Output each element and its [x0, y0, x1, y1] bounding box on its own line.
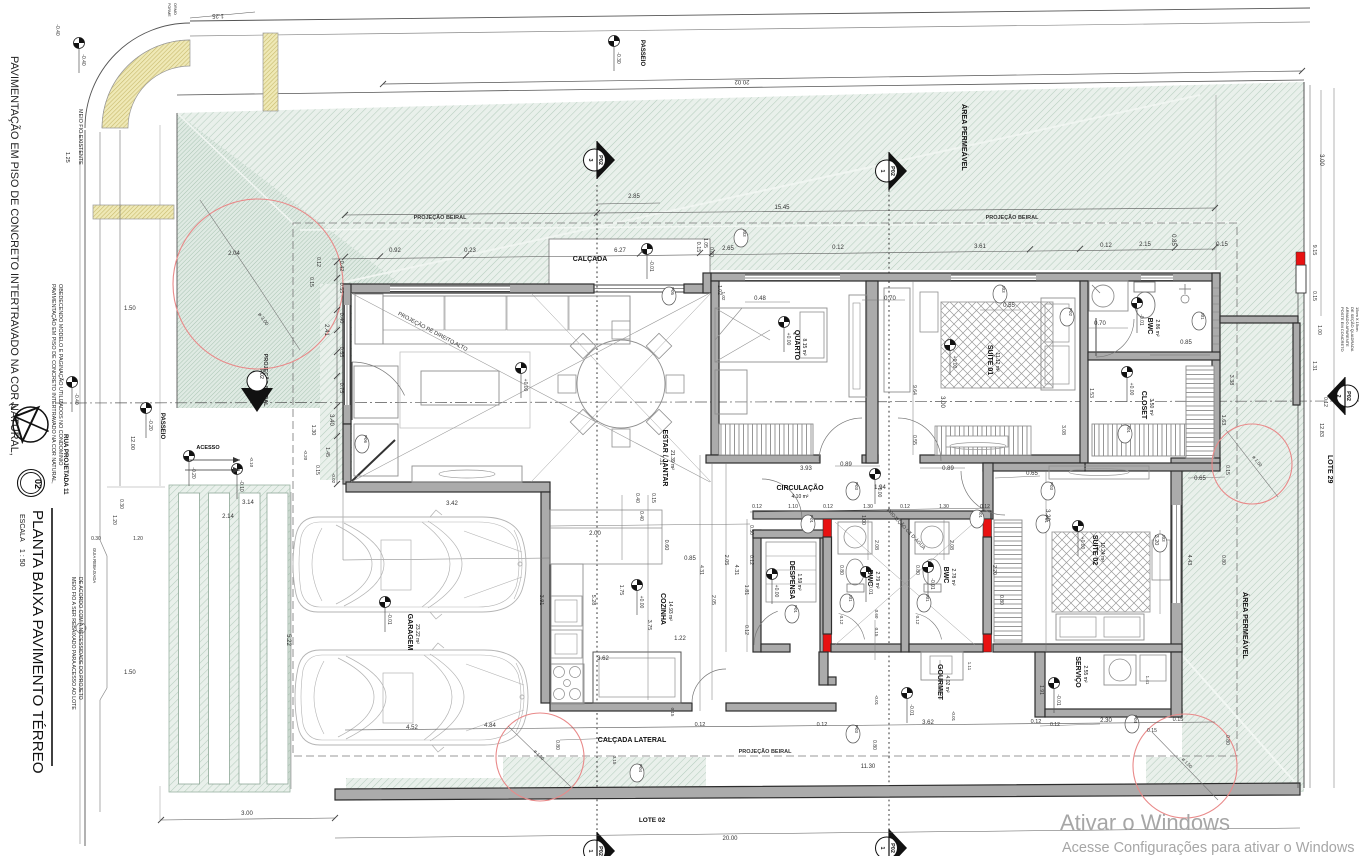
svg-text:23.22 m²: 23.22 m²: [414, 624, 420, 644]
svg-text:0.55: 0.55: [1003, 303, 1015, 309]
svg-text:ÁREA PERMEÁVEL: ÁREA PERMEÁVEL: [1241, 592, 1250, 659]
svg-text:1.30: 1.30: [939, 504, 949, 510]
svg-text:CLOSET: CLOSET: [1140, 391, 1147, 420]
svg-text:COZINHA: COZINHA: [659, 593, 666, 625]
svg-text:J01: J01: [1200, 312, 1205, 320]
svg-text:3.93: 3.93: [800, 466, 812, 472]
svg-text:ACESSO: ACESSO: [196, 445, 220, 451]
svg-text:3.75: 3.75: [646, 620, 652, 631]
svg-text:0.60: 0.60: [663, 540, 669, 551]
svg-text:+0.00: +0.00: [522, 379, 528, 392]
svg-text:0.80: 0.80: [998, 595, 1004, 605]
svg-text:4.31: 4.31: [733, 565, 739, 576]
svg-text:1.11: 1.11: [967, 662, 972, 671]
svg-text:+0.00: +0.00: [1128, 383, 1134, 396]
svg-text:-0.40: -0.40: [73, 393, 79, 405]
svg-text:2.20: 2.20: [991, 565, 997, 575]
svg-text:PROJEÇÃO BEIRAL: PROJEÇÃO BEIRAL: [414, 214, 468, 221]
svg-text:-0.01: -0.01: [951, 711, 956, 722]
svg-text:1.05: 1.05: [702, 238, 708, 248]
svg-text:GUIA REBAIXADA: GUIA REBAIXADA: [92, 548, 97, 583]
svg-text:ORMO: ORMO: [173, 3, 177, 15]
svg-text:0.80: 0.80: [871, 740, 877, 750]
svg-text:5.28: 5.28: [590, 595, 596, 606]
svg-text:1.94: 1.94: [874, 485, 886, 491]
svg-text:0.12: 0.12: [823, 504, 833, 510]
svg-text:0.15: 0.15: [1224, 465, 1230, 475]
svg-text:P02: P02: [1068, 308, 1073, 317]
svg-text:3.20: 3.20: [1153, 535, 1159, 546]
svg-text:3.40: 3.40: [328, 414, 334, 426]
svg-text:-0.40: -0.40: [80, 54, 86, 66]
svg-text:1.53: 1.53: [1088, 388, 1094, 398]
svg-text:15.45: 15.45: [774, 205, 790, 211]
svg-text:4.43: 4.43: [1186, 555, 1192, 566]
svg-text:CALÇADA: CALÇADA: [573, 256, 608, 263]
svg-text:4.84: 4.84: [484, 723, 496, 729]
svg-text:0.65: 0.65: [1026, 471, 1038, 477]
svg-text:A01: A01: [1126, 425, 1131, 434]
svg-text:0.80: 0.80: [914, 565, 920, 575]
svg-text:P03: P03: [854, 482, 859, 491]
svg-text:-0.02: -0.02: [331, 473, 336, 484]
svg-text:A01: A01: [978, 510, 983, 519]
svg-text:0.12: 0.12: [695, 722, 706, 728]
svg-text:0.15: 0.15: [1311, 291, 1317, 301]
svg-text:0.42: 0.42: [338, 261, 344, 272]
svg-text:0.55: 0.55: [338, 347, 344, 358]
svg-text:-0.30: -0.30: [615, 52, 621, 64]
svg-text:0.65: 0.65: [1194, 476, 1206, 482]
svg-text:0.55: 0.55: [338, 283, 344, 294]
svg-text:P02: P02: [597, 846, 603, 856]
svg-text:4.52: 4.52: [406, 725, 418, 731]
svg-text:1.50: 1.50: [124, 306, 136, 312]
svg-text:1.91: 1.91: [1038, 685, 1044, 695]
svg-text:J03: J03: [742, 229, 747, 237]
svg-text:3.62: 3.62: [922, 720, 934, 726]
svg-text:11.30: 11.30: [861, 764, 876, 770]
svg-text:0.70: 0.70: [884, 296, 896, 302]
svg-text:P04: P04: [638, 764, 643, 773]
svg-text:3.00: 3.00: [241, 811, 253, 817]
svg-text:0.89: 0.89: [942, 466, 954, 472]
svg-text:02: 02: [33, 479, 43, 489]
svg-text:ARMADO APARENTE: ARMADO APARENTE: [1345, 307, 1350, 347]
svg-text:0.80: 0.80: [554, 740, 560, 750]
svg-text:0.75: 0.75: [338, 383, 344, 394]
svg-text:-0.10: -0.10: [238, 480, 244, 492]
svg-text:MEIO FIO A SER REBAIXADO PARA: MEIO FIO A SER REBAIXADO PARA ACESSO AO …: [70, 577, 76, 710]
svg-text:21.39 m²: 21.39 m²: [669, 450, 675, 470]
svg-text:3.08: 3.08: [1060, 425, 1066, 435]
svg-text:1: 1: [879, 846, 885, 849]
svg-text:0.80: 0.80: [1224, 735, 1230, 745]
svg-text:J03: J03: [1161, 534, 1166, 542]
svg-text:12.83: 12.83: [1318, 423, 1324, 437]
svg-text:3.91: 3.91: [538, 595, 544, 606]
svg-text:0.15: 0.15: [1173, 717, 1184, 723]
svg-text:QUARTO: QUARTO: [793, 330, 800, 361]
svg-text:1.45: 1.45: [324, 447, 330, 457]
svg-text:P02: P02: [597, 155, 603, 165]
svg-text:1.31: 1.31: [1311, 361, 1317, 371]
svg-text:20.02: 20.02: [734, 78, 750, 84]
svg-text:0.12: 0.12: [817, 722, 828, 728]
svg-text:3.38: 3.38: [1228, 375, 1234, 386]
svg-text:DE SEÇÃO QUADRADA: DE SEÇÃO QUADRADA: [1350, 307, 1355, 352]
svg-text:PLANTA BAIXA PAVIMENTO TÉRREO: PLANTA BAIXA PAVIMENTO TÉRREO: [29, 510, 46, 774]
svg-text:3.42: 3.42: [446, 501, 458, 507]
svg-text:0.12: 0.12: [1100, 243, 1112, 249]
svg-text:1.20: 1.20: [111, 515, 117, 525]
svg-text:PAVIMENTAÇÃO EM PISO DE CONCRE: PAVIMENTAÇÃO EM PISO DE CONCRETO INTERTR…: [50, 284, 57, 484]
svg-text:1.20: 1.20: [133, 536, 143, 542]
svg-text:SERVIÇO: SERVIÇO: [1074, 656, 1081, 688]
svg-text:15cm X 15cm: 15cm X 15cm: [1355, 307, 1359, 332]
svg-text:0.23: 0.23: [464, 248, 476, 254]
svg-text:1.51: 1.51: [939, 688, 944, 697]
svg-text:-0.01: -0.01: [1138, 314, 1144, 326]
svg-text:0.12: 0.12: [839, 616, 844, 625]
svg-text:PAVIMENTAÇÃO EM PISO DE CONCRE: PAVIMENTAÇÃO EM PISO DE CONCRETO INTERTR…: [8, 56, 21, 456]
svg-text:+0.00: +0.00: [638, 596, 644, 609]
svg-text:20.00: 20.00: [722, 836, 738, 842]
svg-text:DE ACORDO COM A NECESSIDADE DO: DE ACORDO COM A NECESSIDADE DO PROJETO: [77, 577, 83, 700]
svg-text:-0.01: -0.01: [929, 578, 935, 590]
svg-text:BWC: BWC: [1146, 318, 1153, 335]
svg-text:2.86 m²: 2.86 m²: [1154, 320, 1160, 337]
svg-text:LOTE 02: LOTE 02: [639, 817, 666, 824]
svg-text:3: 3: [587, 158, 593, 161]
svg-text:0.15: 0.15: [612, 756, 617, 765]
svg-text:-0.01: -0.01: [908, 704, 914, 716]
svg-text:0.80: 0.80: [708, 247, 714, 257]
svg-text:P02: P02: [258, 369, 264, 379]
svg-text:8.15 m²: 8.15 m²: [801, 339, 807, 356]
svg-text:P03: P03: [1049, 482, 1054, 491]
svg-text:Acesse Configurações para ativ: Acesse Configurações para ativar o Windo…: [1062, 840, 1355, 856]
svg-text:0.85: 0.85: [1180, 340, 1192, 346]
svg-text:2.08: 2.08: [873, 540, 879, 550]
svg-text:2.30: 2.30: [1100, 718, 1112, 724]
svg-text:3.20: 3.20: [1044, 509, 1050, 521]
svg-text:3.50 m²: 3.50 m²: [1148, 399, 1154, 416]
svg-text:2.04: 2.04: [228, 251, 240, 257]
svg-text:J03: J03: [1001, 285, 1006, 293]
svg-text:LOTE 29: LOTE 29: [1326, 455, 1333, 484]
svg-text:0.12: 0.12: [743, 625, 749, 635]
svg-text:0.70: 0.70: [1094, 321, 1106, 327]
svg-text:P04: P04: [1133, 715, 1138, 724]
svg-text:0.89: 0.89: [840, 462, 852, 468]
svg-text:-0.10: -0.10: [249, 457, 254, 468]
svg-text:0.12: 0.12: [915, 616, 920, 625]
svg-text:P01: P01: [793, 605, 798, 614]
svg-text:0.60: 0.60: [874, 610, 879, 619]
svg-text:PASSEIO: PASSEIO: [159, 413, 165, 440]
svg-text:14.93 m²: 14.93 m²: [667, 601, 673, 621]
svg-text:P02: P02: [889, 843, 895, 853]
svg-text:-0.01: -0.01: [874, 695, 879, 706]
svg-text:0.15: 0.15: [314, 465, 320, 475]
svg-text:1.22: 1.22: [674, 636, 686, 642]
svg-text:2.41: 2.41: [323, 324, 329, 336]
svg-text:0.85: 0.85: [684, 556, 696, 562]
svg-text:2.14: 2.14: [222, 514, 234, 520]
svg-text:0.15: 0.15: [670, 708, 675, 717]
svg-text:SUÍTE 02: SUÍTE 02: [1091, 535, 1100, 565]
svg-text:+0.00: +0.00: [773, 585, 779, 598]
svg-text:0.12: 0.12: [315, 257, 321, 267]
svg-text:P06: P06: [363, 435, 368, 444]
svg-text:0.12: 0.12: [832, 245, 844, 251]
svg-text:J01: J01: [925, 594, 930, 602]
svg-text:0.30: 0.30: [91, 536, 101, 542]
svg-text:2.08: 2.08: [948, 540, 954, 550]
svg-text:CALÇADA LATERAL: CALÇADA LATERAL: [598, 737, 667, 744]
svg-text:0.12: 0.12: [1322, 397, 1328, 407]
svg-text:2.15: 2.15: [1139, 242, 1151, 248]
svg-text:DESPENSA: DESPENSA: [788, 561, 795, 600]
svg-text:SUÍTE 01: SUÍTE 01: [986, 345, 995, 375]
svg-text:3.62: 3.62: [597, 656, 609, 662]
svg-text:2.65: 2.65: [722, 246, 734, 252]
svg-text:0.12: 0.12: [1031, 719, 1042, 725]
svg-text:0.12: 0.12: [980, 504, 990, 510]
svg-text:PASSEIO: PASSEIO: [639, 40, 645, 67]
svg-text:ÁREA PERMEÁVEL: ÁREA PERMEÁVEL: [960, 104, 969, 171]
svg-text:5.22: 5.22: [285, 634, 291, 646]
svg-text:0.15: 0.15: [1147, 728, 1157, 734]
svg-text:ESCALA: ESCALA: [18, 514, 25, 542]
svg-text:1.10: 1.10: [788, 504, 798, 510]
svg-text:Ativar o Windows: Ativar o Windows: [1060, 810, 1230, 835]
svg-text:4.31: 4.31: [698, 565, 704, 575]
svg-text:1 : 50: 1 : 50: [18, 549, 25, 567]
svg-text:0.12: 0.12: [752, 504, 762, 510]
svg-text:0.85: 0.85: [1170, 234, 1176, 246]
svg-text:0.40: 0.40: [338, 313, 344, 324]
svg-text:2.05: 2.05: [710, 595, 716, 605]
svg-text:FORME: FORME: [167, 3, 171, 17]
svg-text:0.55: 0.55: [911, 435, 917, 445]
svg-text:7.31: 7.31: [658, 455, 664, 466]
svg-text:-0.20: -0.20: [147, 419, 153, 431]
svg-text:0.30: 0.30: [118, 499, 124, 509]
svg-text:1: 1: [879, 169, 885, 172]
svg-text:P05: P05: [670, 287, 675, 296]
svg-text:1.81: 1.81: [743, 585, 749, 596]
svg-text:3.00: 3.00: [939, 396, 945, 408]
svg-text:1.41: 1.41: [1145, 676, 1150, 685]
svg-text:POSTE EM CONCRETO: POSTE EM CONCRETO: [1340, 307, 1345, 352]
svg-text:3.00: 3.00: [1318, 154, 1324, 166]
svg-text:P01: P01: [809, 515, 814, 524]
svg-text:1.59 m²: 1.59 m²: [796, 574, 802, 591]
svg-text:0.15: 0.15: [1216, 242, 1228, 248]
svg-text:0.30: 0.30: [748, 525, 754, 535]
svg-text:0.40: 0.40: [634, 493, 640, 503]
svg-text:-0.40: -0.40: [54, 24, 60, 36]
svg-text:1.50: 1.50: [124, 670, 136, 676]
svg-text:0.12: 0.12: [1050, 722, 1060, 728]
svg-text:BWC: BWC: [866, 570, 873, 587]
svg-text:+0.00: +0.00: [785, 333, 791, 346]
svg-text:-0.01: -0.01: [1055, 694, 1061, 706]
svg-text:2: 2: [1335, 394, 1341, 397]
svg-text:0.80: 0.80: [1220, 555, 1226, 565]
svg-text:+0.00: +0.00: [951, 356, 957, 369]
svg-text:1.75: 1.75: [618, 585, 624, 596]
svg-text:OBEDECENDO MODELO E PAGINAÇÃO: OBEDECENDO MODELO E PAGINAÇÃO UTILIZADOS…: [57, 284, 64, 465]
svg-text:10.24 m²: 10.24 m²: [1099, 542, 1105, 562]
svg-text:1.00: 1.00: [1316, 325, 1322, 335]
svg-text:2.05: 2.05: [723, 555, 729, 566]
svg-text:9.64: 9.64: [911, 385, 917, 395]
svg-text:2.85: 2.85: [628, 194, 640, 200]
svg-text:-0.01: -0.01: [386, 613, 392, 625]
svg-text:1.25: 1.25: [64, 152, 70, 163]
svg-text:1.02: 1.02: [721, 292, 726, 301]
svg-text:-0.20: -0.20: [303, 450, 308, 461]
svg-text:0.12: 0.12: [748, 555, 754, 565]
svg-text:GARAGEM: GARAGEM: [406, 614, 413, 651]
svg-text:4.10 m²: 4.10 m²: [792, 494, 809, 500]
svg-text:2.79 m²: 2.79 m²: [874, 572, 880, 589]
svg-text:P02: P02: [889, 166, 895, 176]
svg-text:CIRCULAÇÃO: CIRCULAÇÃO: [776, 483, 824, 492]
svg-text:1.00: 1.00: [860, 515, 866, 525]
svg-text:1.30: 1.30: [863, 504, 873, 510]
svg-text:P02: P02: [1345, 391, 1351, 401]
svg-text:0.15: 0.15: [695, 242, 701, 253]
svg-text:BWC: BWC: [942, 567, 949, 584]
svg-text:3.14: 3.14: [242, 500, 254, 506]
svg-text:-0.01: -0.01: [648, 260, 654, 272]
svg-text:1.63: 1.63: [1220, 415, 1226, 426]
svg-text:2.55 m²: 2.55 m²: [1082, 666, 1088, 683]
svg-text:MEIO FIO EXISTENTE: MEIO FIO EXISTENTE: [77, 109, 83, 165]
svg-text:9.15: 9.15: [1311, 245, 1317, 256]
svg-text:-0.20: -0.20: [190, 467, 196, 479]
svg-text:2.00: 2.00: [589, 531, 601, 537]
svg-text:0.15: 0.15: [874, 628, 879, 637]
svg-text:3.61: 3.61: [974, 244, 986, 250]
svg-text:0.48: 0.48: [754, 296, 766, 302]
svg-text:0.80: 0.80: [838, 565, 844, 575]
svg-text:+0.00: +0.00: [1079, 537, 1085, 550]
svg-text:0.15: 0.15: [308, 277, 314, 287]
svg-text:0.12: 0.12: [900, 504, 910, 510]
svg-text:1: 1: [587, 849, 593, 852]
svg-text:0.92: 0.92: [389, 248, 401, 254]
svg-text:6.27: 6.27: [614, 248, 626, 254]
svg-text:P03: P03: [854, 725, 859, 734]
svg-text:2.78 m²: 2.78 m²: [950, 569, 956, 586]
svg-text:11.12 m²: 11.12 m²: [994, 352, 1000, 372]
svg-text:1.30: 1.30: [310, 425, 316, 436]
svg-text:0.15: 0.15: [650, 493, 656, 503]
svg-text:PROJEÇÃO BEIRAL: PROJEÇÃO BEIRAL: [739, 748, 793, 755]
svg-text:J01: J01: [848, 594, 853, 602]
svg-text:0.40: 0.40: [638, 511, 644, 521]
svg-text:12.00: 12.00: [129, 436, 135, 450]
svg-text:PROJEÇÃO BEIRAL: PROJEÇÃO BEIRAL: [986, 214, 1040, 221]
